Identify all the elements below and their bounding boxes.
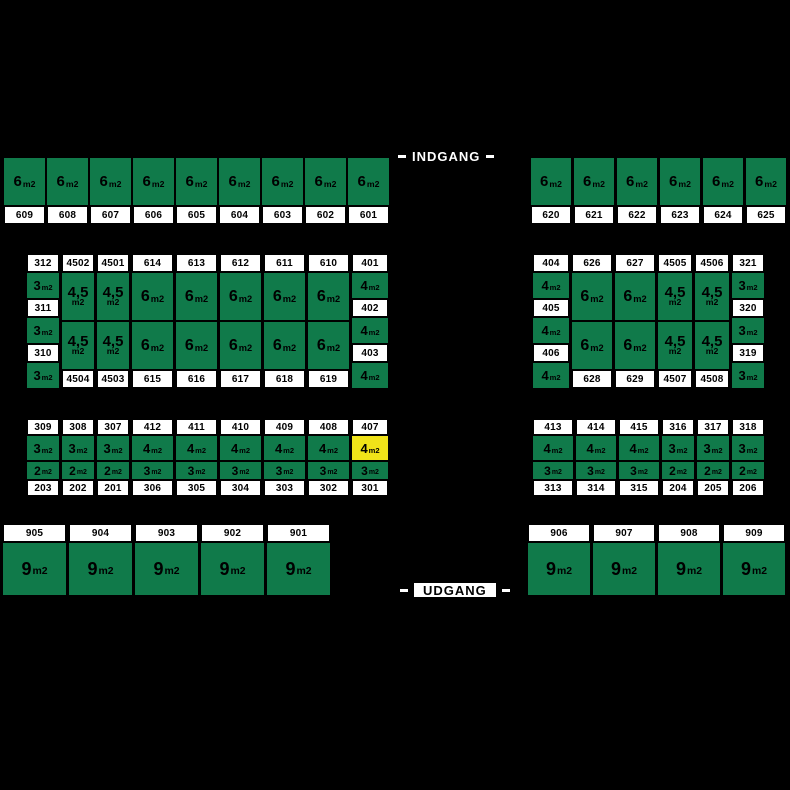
booth-size-unit: m2 (687, 566, 702, 577)
booth-cell[interactable]: 6m2 (220, 273, 261, 320)
booth-number-316: 316 (663, 420, 693, 434)
booth-size-unit: m2 (677, 446, 688, 455)
booth-cell[interactable]: 4m2 (533, 273, 569, 298)
booth-size-value: 6 (755, 173, 763, 190)
booth-number-4505: 4505 (659, 255, 691, 271)
booth-cell[interactable]: 2m2 (97, 462, 129, 479)
entrance-label-group: INDGANG (398, 149, 494, 164)
booth-group-bottom-left: 9059m29049m29039m29029m29019m2 (3, 525, 330, 595)
booth-number-605: 605 (177, 207, 216, 223)
booth-number-904: 904 (70, 525, 131, 541)
booth-size-unit: m2 (590, 294, 603, 304)
booth-size-value: 4 (187, 441, 194, 456)
booth-size-unit: m2 (32, 566, 47, 577)
booth-size-value: 3 (738, 368, 745, 383)
booth-number-202: 202 (63, 481, 93, 495)
booth-size-value: 9 (741, 559, 751, 580)
booth-column: 6m2608 (47, 158, 88, 223)
booth-number-315: 315 (620, 481, 658, 495)
booth-size-unit: m2 (764, 179, 777, 189)
booth-column: 6m2623 (660, 158, 700, 223)
booth-size-unit: m2 (112, 469, 122, 476)
booth-size-unit: m2 (327, 446, 338, 455)
booth-cell[interactable]: 4,5m2 (62, 322, 94, 369)
booth-size-value: 6 (623, 337, 632, 355)
booth-column: 6m2606 (133, 158, 174, 223)
booth-size-value: 6 (185, 288, 194, 306)
booth-column: 9049m2 (69, 525, 132, 595)
booth-size-unit: m2 (151, 343, 164, 353)
booth-cell[interactable]: 9m2 (69, 543, 132, 595)
booth-size-value: 6 (143, 173, 151, 190)
booth-size-value: 3 (738, 278, 745, 293)
exit-door-marker-left (400, 589, 408, 592)
booth-size-unit: m2 (42, 469, 52, 476)
booth-number-902: 902 (202, 525, 263, 541)
booth-cell[interactable]: 6m2 (703, 158, 743, 205)
booth-column: 6m2603 (262, 158, 303, 223)
booth-size-unit: m2 (369, 283, 380, 292)
booth-cell[interactable]: 6m2 (176, 322, 217, 369)
booth-size-value: 6 (669, 173, 677, 190)
booth-cell[interactable]: 6m2 (531, 158, 571, 205)
booth-number-629: 629 (616, 371, 654, 387)
booth-size-unit: m2 (109, 179, 122, 189)
booth-size-unit: m2 (747, 373, 758, 382)
booth-size-value: 6 (14, 173, 22, 190)
booth-column: 9069m2 (528, 525, 590, 595)
booth-size-unit: m2 (281, 179, 294, 189)
booth-number-310: 310 (28, 345, 58, 361)
booth-column: 3093m22m2203 (27, 420, 59, 495)
booth-number-604: 604 (220, 207, 259, 223)
booth-size-unit: m2 (327, 469, 337, 476)
booth-size-unit: m2 (747, 446, 758, 455)
booth-cell[interactable]: 6m2 (615, 273, 655, 320)
booth-size-unit: m2 (369, 328, 380, 337)
booth-size-unit: m2 (638, 446, 649, 455)
booth-cell[interactable]: 4m2 (533, 318, 569, 343)
booth-size-value: 4 (360, 278, 367, 293)
booth-size-unit: m2 (151, 294, 164, 304)
booth-cell[interactable]: 6m2 (308, 322, 349, 369)
booth-cell[interactable]: 6m2 (219, 158, 260, 205)
booth-cell[interactable]: 4m2 (176, 436, 217, 460)
booth-column: 4014m24024m24034m2 (352, 255, 388, 388)
booth-cell[interactable]: 3m2 (352, 462, 388, 479)
booth-number-903: 903 (136, 525, 197, 541)
booth-number-4503: 4503 (98, 371, 128, 387)
booth-size-value: 6 (229, 288, 238, 306)
booth-column: 9029m2 (201, 525, 264, 595)
booth-size-unit: m2 (327, 294, 340, 304)
booth-cell[interactable]: 3m2 (662, 436, 694, 460)
booth-size-value: 3 (630, 464, 637, 478)
booth-size-value: 6 (273, 337, 282, 355)
booth-cell[interactable]: 6m2 (90, 158, 131, 205)
booth-number-312: 312 (28, 255, 58, 271)
booth-number-318: 318 (733, 420, 763, 434)
booth-size-value: 3 (144, 464, 151, 478)
booth-number-304: 304 (221, 481, 260, 495)
entrance-door-marker-left (398, 155, 406, 158)
booth-size-unit: m2 (107, 348, 120, 355)
booth-column: 6276m26m2629 (615, 255, 655, 387)
booth-cell[interactable]: 4m2 (619, 436, 659, 460)
booth-size-unit: m2 (550, 373, 561, 382)
booth-number-606: 606 (134, 207, 173, 223)
booth-cell[interactable]: 6m2 (305, 158, 346, 205)
booth-cell[interactable]: 6m2 (746, 158, 786, 205)
booth-size-unit: m2 (98, 566, 113, 577)
booth-number-628: 628 (573, 371, 611, 387)
booth-number-309: 309 (28, 420, 58, 434)
booth-size-unit: m2 (23, 179, 36, 189)
exit-door-marker-right (502, 589, 510, 592)
booth-cell[interactable]: 3m2 (697, 436, 729, 460)
booth-cell[interactable]: 4m2 (576, 436, 616, 460)
booth-cell[interactable]: 9m2 (593, 543, 655, 595)
booth-number-617: 617 (221, 371, 260, 387)
booth-column: 45064,5m24,5m24508 (695, 255, 729, 387)
booth-size-unit: m2 (283, 343, 296, 353)
booth-size-value: 9 (611, 559, 621, 580)
booth-number-620: 620 (532, 207, 570, 223)
booth-number-4504: 4504 (63, 371, 93, 387)
booth-size-value: 9 (153, 559, 163, 580)
booth-column: 4124m23m2306 (132, 420, 173, 495)
booth-cell[interactable]: 3m2 (732, 436, 764, 460)
booth-number-4506: 4506 (696, 255, 728, 271)
booth-cell[interactable]: 6m2 (47, 158, 88, 205)
booth-cell[interactable]: 4,5m2 (658, 273, 692, 320)
booth-cell[interactable]: 3m2 (308, 462, 349, 479)
booth-size-unit: m2 (283, 446, 294, 455)
booth-size-unit: m2 (552, 446, 563, 455)
booth-cell[interactable]: 4,5m2 (97, 322, 129, 369)
booth-column: 45024,5m24,5m24504 (62, 255, 94, 387)
booth-cell[interactable]: 4m2 (308, 436, 349, 460)
booth-group-lower-left: 3093m22m22033083m22m22023073m22m22014124… (27, 420, 388, 495)
booth-size-value: 3 (33, 441, 40, 456)
booth-size-value: 4 (360, 323, 367, 338)
booth-number-619: 619 (309, 371, 348, 387)
booth-cell[interactable]: 6m2 (617, 158, 657, 205)
booth-size-value: 9 (21, 559, 31, 580)
booth-column: 4084m23m2302 (308, 420, 349, 495)
booth-number-405: 405 (534, 300, 568, 316)
booth-number-625: 625 (747, 207, 785, 223)
booth-cell[interactable]: 4,5m2 (695, 322, 729, 369)
booth-number-4501: 4501 (98, 255, 128, 271)
booth-size-unit: m2 (72, 348, 85, 355)
booth-size-unit: m2 (42, 328, 53, 337)
booth-cell[interactable]: 3m2 (27, 436, 59, 460)
booth-size-value: 2 (104, 464, 111, 478)
booth-cell[interactable]: 2m2 (62, 462, 94, 479)
booth-number-314: 314 (577, 481, 615, 495)
booth-size-value: 6 (100, 173, 108, 190)
booth-cell[interactable]: 3m2 (97, 436, 129, 460)
booth-group-mid-left: 3123m23113m23103m245024,5m24,5m245044501… (27, 255, 388, 388)
booth-number-414: 414 (577, 420, 615, 434)
booth-cell[interactable]: 4m2 (352, 318, 388, 343)
booth-number-612: 612 (221, 255, 260, 271)
booth-size-value: 3 (738, 441, 745, 456)
booth-number-616: 616 (177, 371, 216, 387)
booth-cell[interactable]: 6m2 (574, 158, 614, 205)
booth-group-top-right: 6m26206m26216m26226m26236m26246m2625 (531, 158, 786, 223)
booth-size-value: 4 (541, 368, 548, 383)
booth-size-unit: m2 (369, 373, 380, 382)
booth-cell[interactable]: 9m2 (723, 543, 785, 595)
booth-size-unit: m2 (721, 179, 734, 189)
booth-cell[interactable]: 3m2 (27, 318, 59, 343)
booth-cell[interactable]: 4,5m2 (695, 273, 729, 320)
booth-number-4502: 4502 (63, 255, 93, 271)
booth-size-unit: m2 (112, 446, 123, 455)
booth-number-907: 907 (594, 525, 654, 541)
booth-column: 6m2601 (348, 158, 389, 223)
booth-cell[interactable]: 6m2 (132, 322, 173, 369)
booth-size-value: 3 (544, 464, 551, 478)
booth-cell[interactable]: 3m2 (132, 462, 173, 479)
booth-cell[interactable]: 2m2 (662, 462, 694, 479)
booth-size-unit: m2 (42, 446, 53, 455)
booth-size-unit: m2 (552, 469, 562, 476)
booth-cell[interactable]: 3m2 (732, 273, 764, 298)
booth-size-unit: m2 (324, 179, 337, 189)
booth-number-412: 412 (133, 420, 172, 434)
booth-size-value: 9 (285, 559, 295, 580)
booth-size-unit: m2 (42, 373, 53, 382)
booth-group-bottom-right: 9069m29079m29089m29099m2 (528, 525, 785, 595)
booth-cell[interactable]: 6m2 (572, 273, 612, 320)
booth-size-value: 4 (143, 441, 150, 456)
booth-size-unit: m2 (195, 469, 205, 476)
booth-number-603: 603 (263, 207, 302, 223)
booth-number-4508: 4508 (696, 371, 728, 387)
booth-size-unit: m2 (42, 283, 53, 292)
booth-number-611: 611 (265, 255, 304, 271)
booth-number-302: 302 (309, 481, 348, 495)
booth-cell[interactable]: 6m2 (264, 322, 305, 369)
booth-number-320: 320 (733, 300, 763, 316)
booth-size-unit: m2 (678, 179, 691, 189)
booth-cell[interactable]: 9m2 (3, 543, 66, 595)
booth-number-317: 317 (698, 420, 728, 434)
booth-cell[interactable]: 6m2 (615, 322, 655, 369)
booth-size-unit: m2 (369, 469, 379, 476)
booth-size-unit: m2 (557, 566, 572, 577)
booth-group-lower-right: 4134m23m23134144m23m23144154m23m23153163… (533, 420, 764, 495)
booth-column: 4154m23m2315 (619, 420, 659, 495)
booth-size-unit: m2 (706, 348, 719, 355)
booth-number-909: 909 (724, 525, 784, 541)
booth-cell[interactable]: 4m2 (220, 436, 261, 460)
booth-cell[interactable]: 6m2 (264, 273, 305, 320)
booth-size-unit: m2 (77, 446, 88, 455)
booth-number-623: 623 (661, 207, 699, 223)
booth-column: 9099m2 (723, 525, 785, 595)
booth-cell[interactable]: 4,5m2 (658, 322, 692, 369)
booth-number-908: 908 (659, 525, 719, 541)
booth-size-value: 6 (141, 288, 150, 306)
booth-column: 6m2604 (219, 158, 260, 223)
booth-cell[interactable]: 4m2 (352, 363, 388, 388)
booth-size-value: 6 (185, 337, 194, 355)
booth-size-value: 6 (57, 173, 65, 190)
booth-cell[interactable]: 9m2 (528, 543, 590, 595)
booth-cell[interactable]: 3m2 (732, 318, 764, 343)
booth-cell[interactable]: 3m2 (220, 462, 261, 479)
booth-size-unit: m2 (590, 343, 603, 353)
booth-size-unit: m2 (77, 469, 87, 476)
booth-number-408: 408 (309, 420, 348, 434)
booth-column: 9089m2 (658, 525, 720, 595)
booth-number-307: 307 (98, 420, 128, 434)
booth-size-unit: m2 (72, 299, 85, 306)
booth-column: 9079m2 (593, 525, 655, 595)
booth-cell[interactable]: 3m2 (264, 462, 305, 479)
booth-number-627: 627 (616, 255, 654, 271)
booth-cell[interactable]: 9m2 (267, 543, 330, 595)
booth-number-308: 308 (63, 420, 93, 434)
booth-size-value: 4 (319, 441, 326, 456)
booth-size-value: 3 (320, 464, 327, 478)
booth-cell[interactable]: 9m2 (658, 543, 720, 595)
booth-column: 6m2621 (574, 158, 614, 223)
booth-size-value: 3 (188, 464, 195, 478)
booth-size-unit: m2 (633, 343, 646, 353)
booth-size-unit: m2 (151, 446, 162, 455)
booth-size-value: 3 (276, 464, 283, 478)
booth-number-321: 321 (733, 255, 763, 271)
booth-cell[interactable]: 2m2 (697, 462, 729, 479)
booth-size-unit: m2 (66, 179, 79, 189)
booth-cell[interactable]: 9m2 (201, 543, 264, 595)
booth-column: 6m2622 (617, 158, 657, 223)
booth-column: 9059m2 (3, 525, 66, 595)
booth-cell[interactable]: 4,5m2 (62, 273, 94, 320)
booth-size-unit: m2 (752, 566, 767, 577)
booth-cell[interactable]: 3m2 (732, 363, 764, 388)
booth-size-value: 4 (586, 441, 593, 456)
booth-size-value: 3 (668, 441, 675, 456)
booth-size-unit: m2 (595, 469, 605, 476)
booth-cell[interactable]: 6m2 (572, 322, 612, 369)
exit-label-group: UDGANG (400, 583, 510, 597)
booth-number-205: 205 (698, 481, 728, 495)
booth-column: 9039m2 (135, 525, 198, 595)
booth-size-value: 3 (33, 323, 40, 338)
booth-number-607: 607 (91, 207, 130, 223)
booth-number-618: 618 (265, 371, 304, 387)
booth-cell[interactable]: 6m2 (348, 158, 389, 205)
booth-size-value: 2 (69, 464, 76, 478)
booth-number-313: 313 (534, 481, 572, 495)
booth-cell[interactable]: 3m2 (619, 462, 659, 479)
booth-number-905: 905 (4, 525, 65, 541)
booth-size-unit: m2 (195, 179, 208, 189)
booth-column: 45054,5m24,5m24507 (658, 255, 692, 387)
booth-size-value: 2 (704, 464, 711, 478)
booth-column: 6m2625 (746, 158, 786, 223)
booth-column: 3173m22m2205 (697, 420, 729, 495)
booth-size-value: 6 (272, 173, 280, 190)
booth-size-value: 3 (587, 464, 594, 478)
booth-size-value: 9 (219, 559, 229, 580)
booth-size-unit: m2 (195, 343, 208, 353)
booth-cell[interactable]: 4m2 (533, 436, 573, 460)
booth-cell[interactable]: 4m2 (533, 363, 569, 388)
booth-cell[interactable]: 3m2 (27, 363, 59, 388)
booth-size-unit: m2 (706, 299, 719, 306)
booth-cell[interactable]: 6m2 (262, 158, 303, 205)
booth-column: 6m2624 (703, 158, 743, 223)
booth-cell[interactable]: 4m2 (352, 273, 388, 298)
booth-cell[interactable]: 2m2 (732, 462, 764, 479)
booth-size-value: 4 (541, 278, 548, 293)
booth-cell[interactable]: 6m2 (133, 158, 174, 205)
booth-number-301: 301 (353, 481, 387, 495)
booth-column: 6m2620 (531, 158, 571, 223)
booth-size-value: 6 (580, 337, 589, 355)
booth-column: 6136m26m2616 (176, 255, 217, 387)
booth-column: 6106m26m2619 (308, 255, 349, 387)
booth-size-value: 2 (739, 464, 746, 478)
booth-column: 6146m26m2615 (132, 255, 173, 387)
booth-size-unit: m2 (239, 343, 252, 353)
booth-number-306: 306 (133, 481, 172, 495)
booth-cell[interactable]: 6m2 (660, 158, 700, 205)
booth-cell[interactable]: 2m2 (27, 462, 59, 479)
booth-cell[interactable]: 3m2 (576, 462, 616, 479)
booth-cell[interactable]: 6m2 (308, 273, 349, 320)
booth-size-unit: m2 (747, 328, 758, 337)
booth-cell[interactable]: 6m2 (220, 322, 261, 369)
booth-cell-highlighted[interactable]: 4m2 (352, 436, 388, 460)
booth-cell[interactable]: 6m2 (176, 158, 217, 205)
booth-size-unit: m2 (669, 348, 682, 355)
booth-cell[interactable]: 3m2 (176, 462, 217, 479)
booth-column: 6116m26m2618 (264, 255, 305, 387)
booth-number-410: 410 (221, 420, 260, 434)
booth-cell[interactable]: 6m2 (132, 273, 173, 320)
booth-number-404: 404 (534, 255, 568, 271)
booth-size-value: 6 (315, 173, 323, 190)
booth-size-unit: m2 (549, 179, 562, 189)
booth-number-610: 610 (309, 255, 348, 271)
exit-label: UDGANG (414, 583, 496, 597)
booth-cell[interactable]: 3m2 (62, 436, 94, 460)
booth-cell[interactable]: 6m2 (4, 158, 45, 205)
booth-size-unit: m2 (747, 469, 757, 476)
booth-cell[interactable]: 9m2 (135, 543, 198, 595)
booth-cell[interactable]: 6m2 (176, 273, 217, 320)
booth-cell[interactable]: 4m2 (264, 436, 305, 460)
booth-size-value: 6 (186, 173, 194, 190)
booth-size-unit: m2 (283, 294, 296, 304)
booth-cell[interactable]: 4m2 (132, 436, 173, 460)
booth-size-value: 3 (232, 464, 239, 478)
booth-cell[interactable]: 4,5m2 (97, 273, 129, 320)
booth-column: 6266m26m2628 (572, 255, 612, 387)
booth-column: 4144m23m2314 (576, 420, 616, 495)
booth-cell[interactable]: 3m2 (27, 273, 59, 298)
booth-size-unit: m2 (296, 566, 311, 577)
booth-cell[interactable]: 3m2 (533, 462, 573, 479)
